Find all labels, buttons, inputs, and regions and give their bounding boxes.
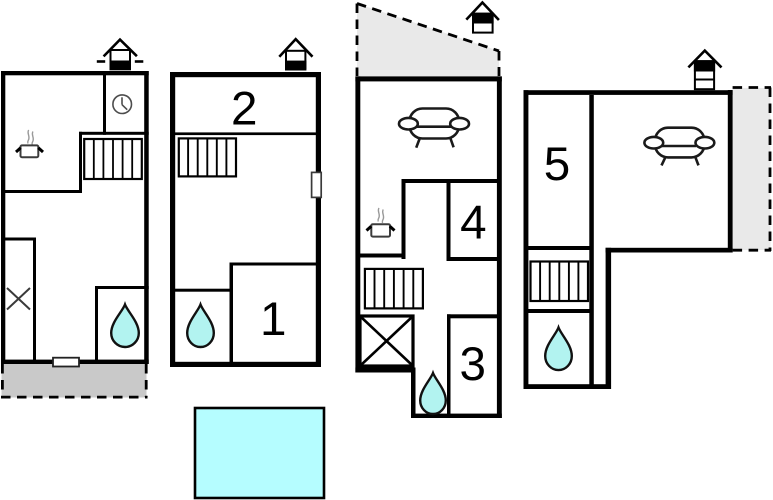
svg-text:5: 5 — [544, 138, 570, 191]
svg-text:3: 3 — [460, 338, 486, 391]
svg-text:2: 2 — [231, 82, 257, 135]
svg-text:1: 1 — [260, 293, 286, 346]
svg-text:4: 4 — [460, 197, 486, 250]
